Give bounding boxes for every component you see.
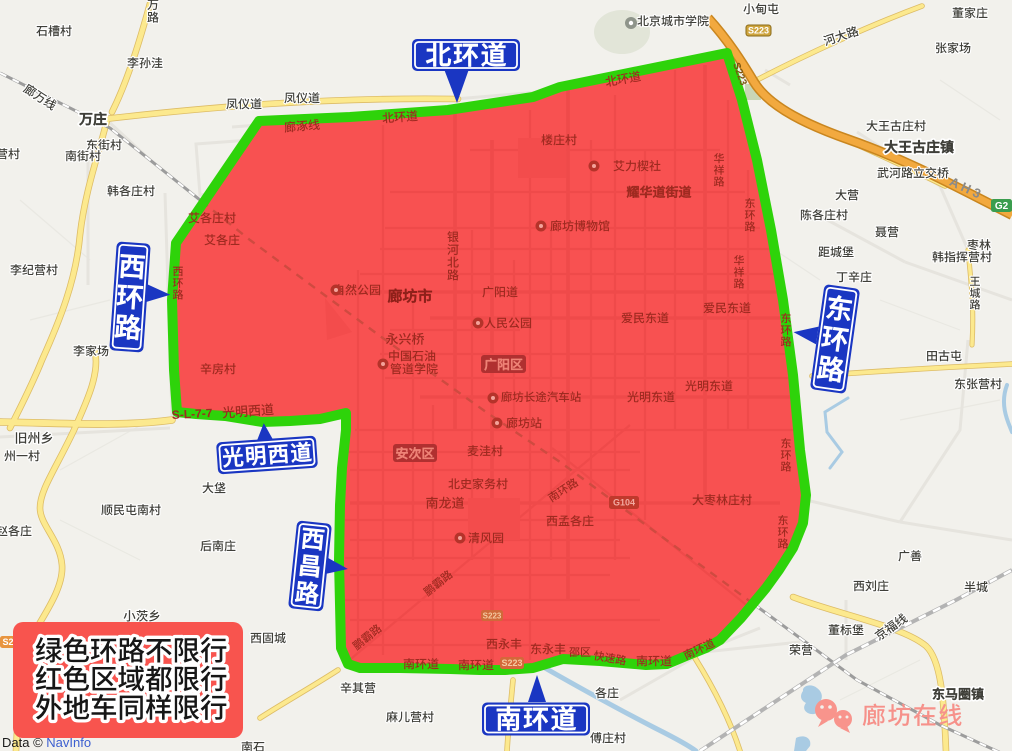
svg-text:S2: S2 [2, 637, 13, 647]
svg-text:S-L-7-7: S-L-7-7 [171, 406, 213, 422]
svg-text:G2: G2 [995, 201, 1009, 212]
svg-text:Data © NavInfo: Data © NavInfo [2, 735, 91, 750]
svg-text:S223: S223 [501, 658, 522, 668]
svg-text:G104: G104 [613, 498, 635, 508]
svg-text:S223: S223 [748, 26, 769, 36]
svg-text:S223: S223 [483, 611, 502, 620]
